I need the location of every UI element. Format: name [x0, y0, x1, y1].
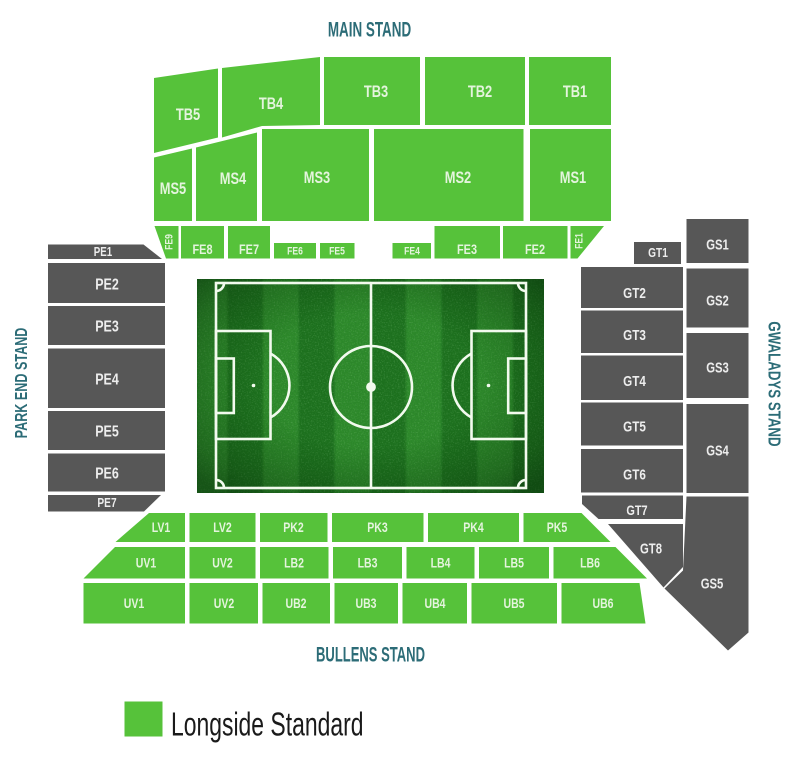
svg-text:GT1: GT1 — [648, 246, 668, 260]
svg-text:MS3: MS3 — [304, 170, 330, 188]
svg-text:GS3: GS3 — [706, 359, 729, 376]
svg-text:PE1: PE1 — [94, 246, 112, 259]
svg-text:UV1: UV1 — [136, 555, 157, 571]
svg-text:PK3: PK3 — [367, 520, 388, 536]
svg-text:FE9: FE9 — [164, 234, 176, 250]
svg-text:UB6: UB6 — [592, 596, 613, 612]
svg-text:TB3: TB3 — [364, 84, 388, 102]
svg-text:GS4: GS4 — [706, 442, 729, 459]
svg-text:GT3: GT3 — [623, 327, 646, 344]
svg-text:GT4: GT4 — [623, 373, 646, 390]
svg-text:LB6: LB6 — [580, 555, 600, 571]
svg-text:FE3: FE3 — [457, 242, 477, 258]
svg-text:UV1: UV1 — [124, 596, 145, 612]
svg-text:GT2: GT2 — [623, 285, 646, 302]
svg-text:GT6: GT6 — [623, 466, 646, 483]
svg-text:PE6: PE6 — [95, 465, 119, 483]
svg-text:LB2: LB2 — [284, 555, 304, 571]
svg-text:PE7: PE7 — [97, 496, 116, 510]
svg-text:BULLENS STAND: BULLENS STAND — [316, 642, 425, 666]
svg-text:MAIN STAND: MAIN STAND — [328, 17, 411, 41]
svg-text:LV2: LV2 — [213, 520, 232, 536]
svg-text:FE8: FE8 — [192, 242, 212, 258]
svg-text:UV2: UV2 — [212, 555, 233, 571]
svg-text:LB3: LB3 — [358, 555, 378, 571]
svg-text:FE6: FE6 — [287, 246, 303, 258]
svg-text:MS5: MS5 — [160, 181, 186, 199]
svg-text:FE5: FE5 — [329, 246, 345, 258]
svg-text:FE2: FE2 — [525, 242, 545, 258]
svg-text:LB4: LB4 — [431, 555, 451, 571]
svg-text:GT5: GT5 — [623, 418, 646, 435]
svg-text:LB5: LB5 — [504, 555, 524, 571]
svg-text:PE4: PE4 — [95, 371, 119, 389]
svg-text:PK4: PK4 — [463, 520, 484, 536]
svg-text:PARK END STAND: PARK END STAND — [12, 328, 32, 439]
svg-text:FE1: FE1 — [574, 233, 586, 249]
svg-text:PE3: PE3 — [95, 318, 119, 336]
svg-text:Longside Standard: Longside Standard — [171, 706, 363, 743]
svg-text:PE2: PE2 — [95, 276, 119, 294]
svg-text:UB2: UB2 — [285, 596, 306, 612]
svg-text:GS2: GS2 — [706, 292, 729, 309]
svg-text:TB1: TB1 — [563, 84, 587, 102]
svg-text:UB5: UB5 — [503, 596, 524, 612]
svg-text:LV1: LV1 — [152, 520, 171, 536]
svg-text:MS2: MS2 — [445, 170, 471, 188]
svg-text:GS5: GS5 — [701, 575, 724, 592]
svg-text:GS1: GS1 — [706, 236, 729, 253]
svg-text:GWALADYS STAND: GWALADYS STAND — [764, 321, 783, 446]
svg-text:UV2: UV2 — [214, 596, 235, 612]
svg-text:GT7: GT7 — [626, 503, 647, 519]
svg-text:MS1: MS1 — [560, 170, 586, 188]
svg-text:TB5: TB5 — [176, 107, 200, 125]
svg-text:UB3: UB3 — [355, 596, 376, 612]
svg-text:PK2: PK2 — [283, 520, 304, 536]
svg-text:PK5: PK5 — [547, 520, 568, 536]
svg-text:TB2: TB2 — [468, 84, 492, 102]
svg-text:UB4: UB4 — [424, 596, 445, 612]
svg-text:TB4: TB4 — [259, 96, 284, 114]
svg-text:FE7: FE7 — [239, 242, 259, 258]
svg-text:GT8: GT8 — [640, 540, 662, 557]
svg-text:FE4: FE4 — [404, 246, 420, 258]
svg-text:PE5: PE5 — [95, 423, 119, 441]
svg-text:MS4: MS4 — [220, 171, 247, 189]
